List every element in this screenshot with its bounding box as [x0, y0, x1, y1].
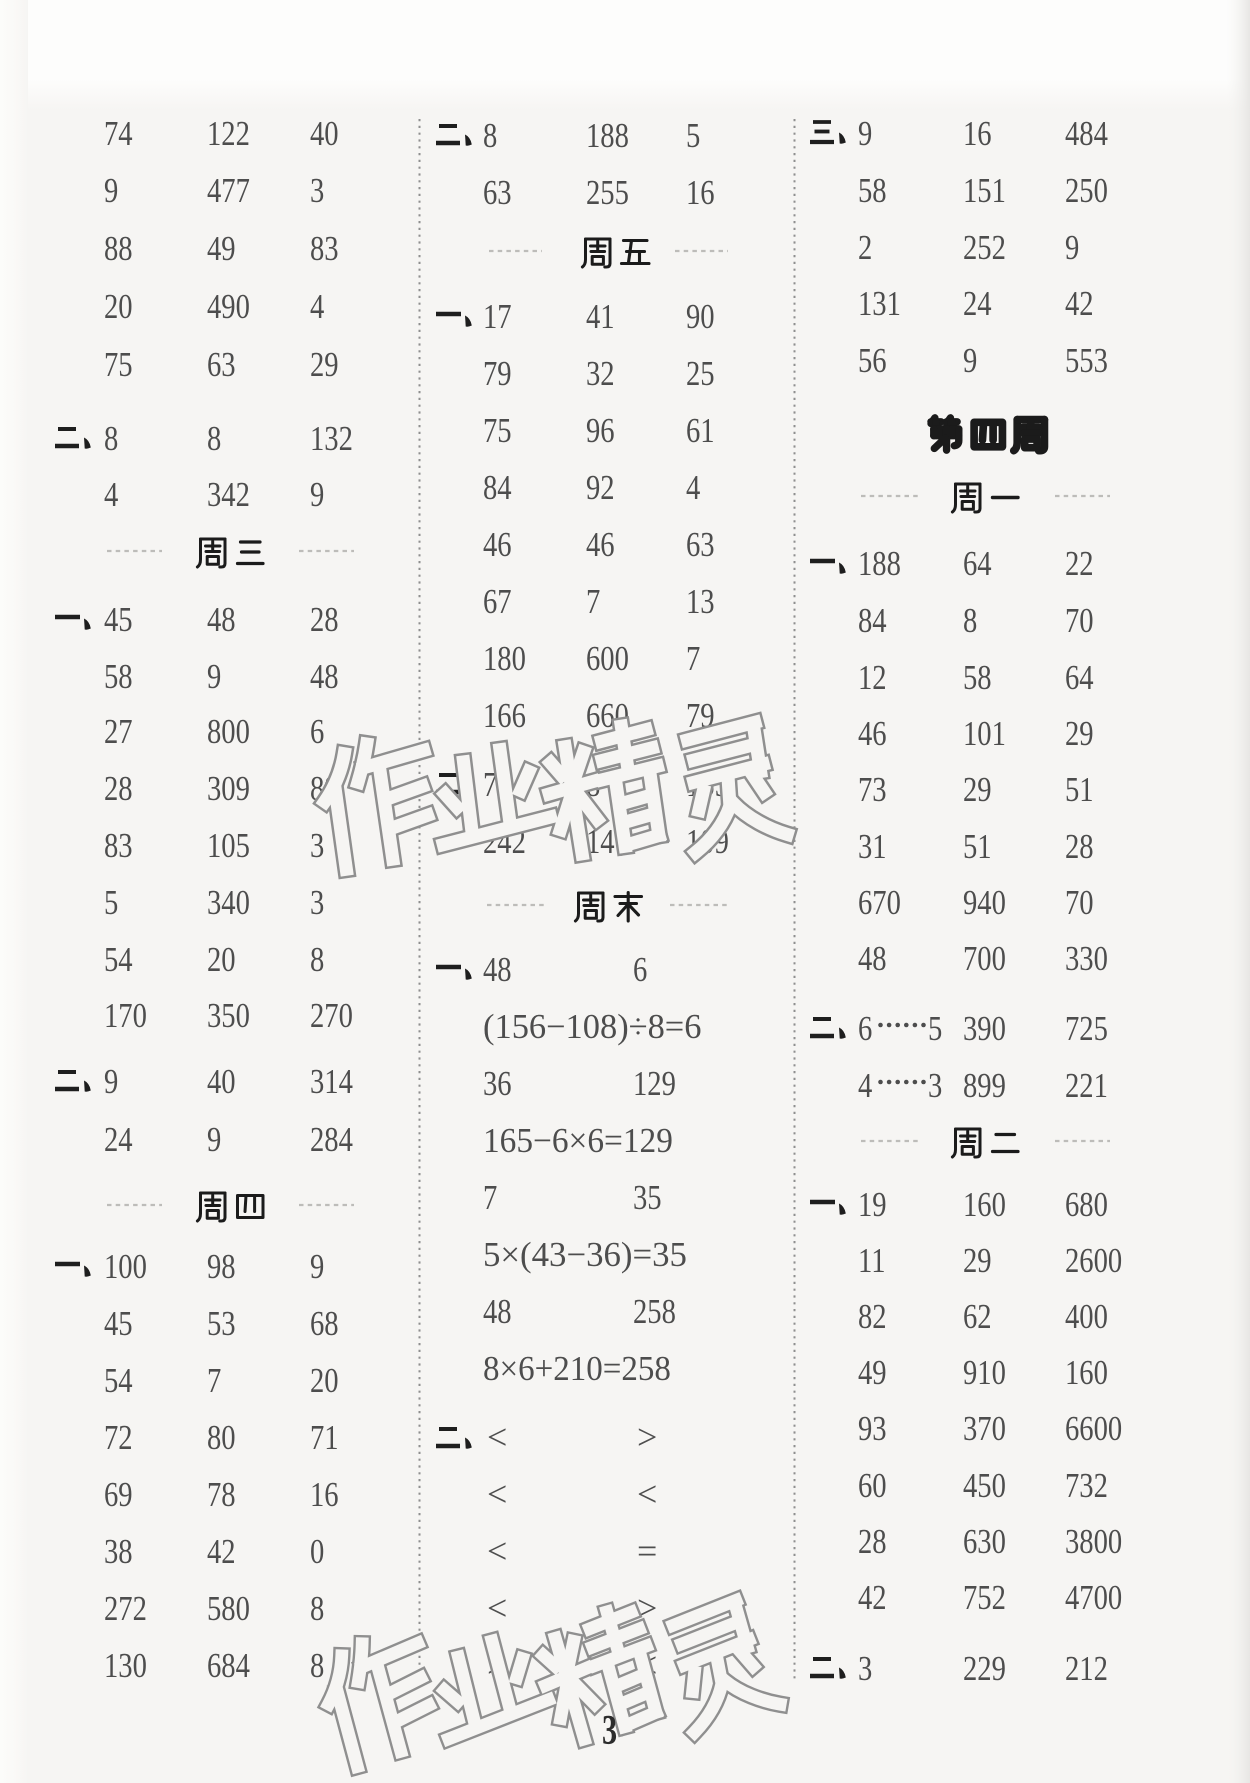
svg-text:13: 13 — [686, 582, 715, 620]
svg-text:64: 64 — [1065, 658, 1094, 696]
svg-text:131: 131 — [858, 284, 901, 322]
svg-text:6: 6 — [310, 712, 324, 750]
svg-text:5×(43−36)=35: 5×(43−36)=35 — [483, 1235, 687, 1274]
svg-text:19: 19 — [858, 1185, 887, 1223]
svg-text:72: 72 — [104, 1418, 133, 1456]
svg-text:2: 2 — [858, 228, 872, 266]
svg-text:20: 20 — [104, 287, 133, 325]
svg-text:48: 48 — [858, 939, 887, 977]
svg-text:255: 255 — [586, 173, 629, 211]
svg-text:64: 64 — [963, 544, 992, 582]
svg-text:800: 800 — [207, 712, 250, 750]
svg-text:309: 309 — [207, 769, 250, 807]
svg-text:9: 9 — [310, 1247, 324, 1285]
svg-text:3: 3 — [310, 883, 324, 921]
svg-text:5: 5 — [686, 116, 700, 154]
svg-text:284: 284 — [310, 1120, 353, 1158]
svg-text:6600: 6600 — [1065, 1409, 1122, 1447]
svg-text:6: 6 — [858, 1009, 872, 1047]
svg-text:4: 4 — [686, 468, 700, 506]
svg-text:8: 8 — [104, 419, 118, 457]
svg-text:170: 170 — [104, 996, 147, 1034]
svg-text:180: 180 — [483, 639, 526, 677]
svg-text:7: 7 — [686, 639, 700, 677]
svg-text:11: 11 — [858, 1241, 886, 1279]
svg-text:42: 42 — [207, 1532, 236, 1570]
svg-text:28: 28 — [1065, 827, 1094, 865]
svg-text:9: 9 — [963, 341, 977, 379]
svg-text:75: 75 — [483, 411, 512, 449]
svg-text:3800: 3800 — [1065, 1522, 1122, 1560]
svg-text:90: 90 — [686, 297, 715, 335]
svg-text:270: 270 — [310, 996, 353, 1034]
svg-text:71: 71 — [310, 1418, 339, 1456]
svg-text:27: 27 — [104, 712, 133, 750]
svg-text:>: > — [637, 1417, 657, 1457]
svg-text:67: 67 — [483, 582, 512, 620]
svg-text:160: 160 — [963, 1185, 1006, 1223]
svg-text:54: 54 — [104, 940, 133, 978]
svg-text:32: 32 — [586, 354, 615, 392]
svg-text:3: 3 — [928, 1066, 942, 1104]
svg-text:29: 29 — [310, 345, 339, 383]
svg-text:680: 680 — [1065, 1185, 1108, 1223]
svg-text:314: 314 — [310, 1062, 353, 1100]
svg-text:35: 35 — [633, 1178, 662, 1216]
svg-text:684: 684 — [207, 1646, 250, 1684]
svg-text:70: 70 — [1065, 883, 1094, 921]
svg-text:6: 6 — [633, 950, 647, 988]
svg-text:98: 98 — [207, 1247, 236, 1285]
svg-text:96: 96 — [586, 411, 615, 449]
svg-text:58: 58 — [104, 657, 133, 695]
svg-text:53: 53 — [207, 1304, 236, 1342]
svg-text:48: 48 — [207, 600, 236, 638]
svg-text:160: 160 — [1065, 1353, 1108, 1391]
svg-text:165−6×6=129: 165−6×6=129 — [483, 1122, 673, 1160]
svg-text:48: 48 — [483, 950, 512, 988]
svg-text:700: 700 — [963, 939, 1006, 977]
svg-text:74: 74 — [104, 114, 133, 152]
svg-text:580: 580 — [207, 1589, 250, 1627]
svg-text:258: 258 — [633, 1292, 676, 1330]
svg-text:8: 8 — [310, 1646, 324, 1684]
svg-text:63: 63 — [483, 173, 512, 211]
svg-text:122: 122 — [207, 114, 250, 152]
svg-text:84: 84 — [483, 468, 512, 506]
svg-text:5: 5 — [928, 1009, 942, 1047]
svg-text:58: 58 — [858, 171, 887, 209]
svg-text:17: 17 — [483, 297, 512, 335]
svg-text:38: 38 — [104, 1532, 133, 1570]
svg-text:0: 0 — [310, 1532, 324, 1570]
svg-text:4700: 4700 — [1065, 1578, 1122, 1616]
svg-text:100: 100 — [104, 1247, 147, 1285]
svg-text:105: 105 — [207, 826, 250, 864]
svg-text:9: 9 — [1065, 228, 1079, 266]
svg-text:330: 330 — [1065, 939, 1108, 977]
svg-text:40: 40 — [310, 114, 339, 152]
svg-text:8: 8 — [207, 419, 221, 457]
svg-text:7: 7 — [483, 1178, 497, 1216]
svg-text:48: 48 — [483, 1292, 512, 1330]
svg-text:4: 4 — [104, 475, 118, 513]
svg-text:=: = — [637, 1531, 657, 1571]
svg-text:29: 29 — [963, 770, 992, 808]
svg-text:4: 4 — [310, 287, 324, 325]
svg-text:<: < — [637, 1474, 657, 1514]
svg-text:83: 83 — [310, 229, 339, 267]
svg-text:61: 61 — [686, 411, 715, 449]
svg-text:63: 63 — [686, 525, 715, 563]
svg-text:553: 553 — [1065, 341, 1108, 379]
svg-text:62: 62 — [963, 1297, 992, 1335]
svg-text:4: 4 — [858, 1066, 872, 1104]
svg-text:8: 8 — [483, 116, 497, 154]
svg-text:70: 70 — [1065, 601, 1094, 639]
svg-text:600: 600 — [586, 639, 629, 677]
svg-text:28: 28 — [310, 600, 339, 638]
svg-text:16: 16 — [686, 173, 715, 211]
svg-text:212: 212 — [1065, 1649, 1108, 1687]
svg-text:31: 31 — [858, 827, 887, 865]
svg-text:8: 8 — [963, 601, 977, 639]
svg-text:670: 670 — [858, 883, 901, 921]
svg-text:<: < — [487, 1531, 507, 1571]
svg-text:3: 3 — [310, 826, 324, 864]
svg-text:370: 370 — [963, 1409, 1006, 1447]
svg-text:9: 9 — [104, 1062, 118, 1100]
svg-text:9: 9 — [858, 114, 872, 152]
svg-text:49: 49 — [207, 229, 236, 267]
svg-text:16: 16 — [963, 114, 992, 152]
svg-text:69: 69 — [104, 1475, 133, 1513]
svg-text:<: < — [487, 1417, 507, 1457]
svg-text:3: 3 — [602, 1706, 617, 1753]
svg-text:166: 166 — [483, 696, 526, 734]
svg-text:82: 82 — [858, 1297, 887, 1335]
svg-text:56: 56 — [858, 341, 887, 379]
svg-text:68: 68 — [310, 1304, 339, 1342]
svg-text:45: 45 — [104, 600, 133, 638]
svg-text:63: 63 — [207, 345, 236, 383]
svg-text:42: 42 — [858, 1578, 887, 1616]
svg-text:221: 221 — [1065, 1066, 1108, 1104]
svg-text:58: 58 — [963, 658, 992, 696]
svg-text:46: 46 — [858, 714, 887, 752]
svg-text:12: 12 — [858, 658, 887, 696]
svg-text:46: 46 — [586, 525, 615, 563]
svg-text:<: < — [487, 1474, 507, 1514]
svg-text:28: 28 — [858, 1522, 887, 1560]
svg-text:630: 630 — [963, 1522, 1006, 1560]
svg-text:(156−108)÷8=6: (156−108)÷8=6 — [483, 1007, 701, 1046]
svg-text:41: 41 — [586, 297, 615, 335]
svg-text:229: 229 — [963, 1649, 1006, 1687]
svg-text:9: 9 — [207, 1120, 221, 1158]
svg-text:252: 252 — [963, 228, 1006, 266]
svg-text:22: 22 — [1065, 544, 1094, 582]
svg-text:83: 83 — [104, 826, 133, 864]
svg-text:477: 477 — [207, 171, 250, 209]
svg-text:51: 51 — [1065, 770, 1094, 808]
svg-text:340: 340 — [207, 883, 250, 921]
svg-text:46: 46 — [483, 525, 512, 563]
svg-text:36: 36 — [483, 1064, 512, 1102]
svg-text:5: 5 — [104, 883, 118, 921]
svg-text:73: 73 — [858, 770, 887, 808]
svg-text:20: 20 — [310, 1361, 339, 1399]
svg-text:25: 25 — [686, 354, 715, 392]
svg-text:101: 101 — [963, 714, 1006, 752]
svg-text:79: 79 — [483, 354, 512, 392]
svg-text:188: 188 — [858, 544, 901, 582]
svg-text:350: 350 — [207, 996, 250, 1034]
svg-text:28: 28 — [104, 769, 133, 807]
svg-text:84: 84 — [858, 601, 887, 639]
svg-text:24: 24 — [963, 284, 992, 322]
svg-text:450: 450 — [963, 1466, 1006, 1504]
svg-text:400: 400 — [1065, 1297, 1108, 1335]
svg-text:2600: 2600 — [1065, 1241, 1122, 1279]
svg-text:342: 342 — [207, 475, 250, 513]
svg-text:51: 51 — [963, 827, 992, 865]
svg-text:49: 49 — [858, 1353, 887, 1391]
svg-text:29: 29 — [1065, 714, 1094, 752]
svg-text:60: 60 — [858, 1466, 887, 1504]
svg-text:940: 940 — [963, 883, 1006, 921]
svg-text:24: 24 — [104, 1120, 133, 1158]
svg-text:188: 188 — [586, 116, 629, 154]
svg-text:92: 92 — [586, 468, 615, 506]
svg-text:272: 272 — [104, 1589, 147, 1627]
svg-text:7: 7 — [586, 582, 600, 620]
svg-text:130: 130 — [104, 1646, 147, 1684]
svg-text:40: 40 — [207, 1062, 236, 1100]
svg-text:132: 132 — [310, 419, 353, 457]
svg-text:75: 75 — [104, 345, 133, 383]
svg-text:80: 80 — [207, 1418, 236, 1456]
svg-text:9: 9 — [104, 171, 118, 209]
svg-text:20: 20 — [207, 940, 236, 978]
svg-text:45: 45 — [104, 1304, 133, 1342]
svg-text:78: 78 — [207, 1475, 236, 1513]
svg-text:93: 93 — [858, 1409, 887, 1447]
svg-text:16: 16 — [310, 1475, 339, 1513]
svg-text:390: 390 — [963, 1009, 1006, 1047]
svg-text:151: 151 — [963, 171, 1006, 209]
svg-text:250: 250 — [1065, 171, 1108, 209]
svg-text:9: 9 — [207, 657, 221, 695]
svg-text:8: 8 — [310, 940, 324, 978]
svg-text:899: 899 — [963, 1066, 1006, 1104]
svg-text:484: 484 — [1065, 114, 1108, 152]
svg-text:7: 7 — [207, 1361, 221, 1399]
svg-text:3: 3 — [858, 1649, 872, 1687]
svg-text:129: 129 — [633, 1064, 676, 1102]
svg-text:9: 9 — [310, 475, 324, 513]
svg-text:910: 910 — [963, 1353, 1006, 1391]
svg-text:490: 490 — [207, 287, 250, 325]
svg-text:8: 8 — [310, 1589, 324, 1627]
svg-text:54: 54 — [104, 1361, 133, 1399]
svg-text:725: 725 — [1065, 1009, 1108, 1047]
svg-text:8×6+210=258: 8×6+210=258 — [483, 1350, 671, 1388]
svg-text:3: 3 — [310, 171, 324, 209]
svg-text:732: 732 — [1065, 1466, 1108, 1504]
svg-text:88: 88 — [104, 229, 133, 267]
svg-text:29: 29 — [963, 1241, 992, 1279]
svg-text:42: 42 — [1065, 284, 1094, 322]
svg-text:752: 752 — [963, 1578, 1006, 1616]
svg-text:48: 48 — [310, 657, 339, 695]
svg-text:<: < — [487, 1588, 507, 1628]
